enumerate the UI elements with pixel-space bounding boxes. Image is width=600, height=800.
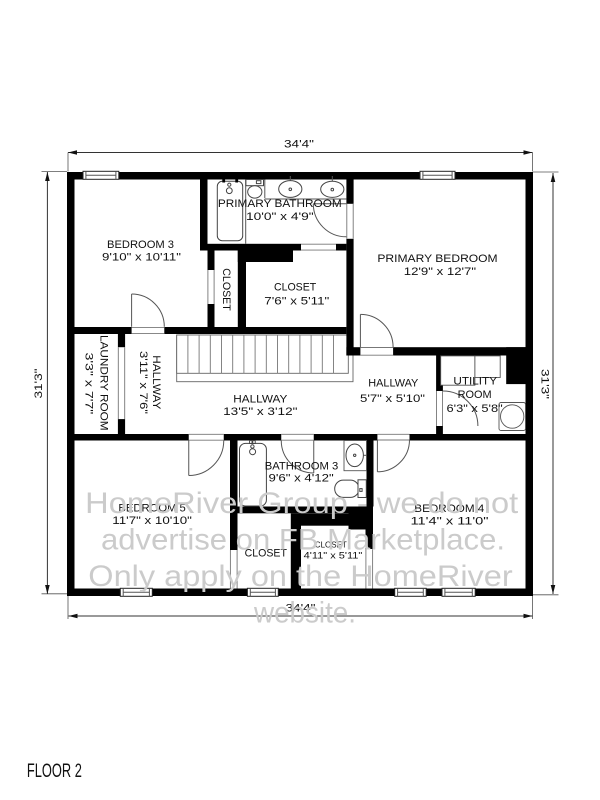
svg-text:CLOSET: CLOSET (274, 282, 316, 294)
svg-text:12'9" x 12'7": 12'9" x 12'7" (404, 266, 476, 278)
svg-text:34'4": 34'4" (284, 139, 314, 151)
svg-text:PRIMARY BATHROOM: PRIMARY BATHROOM (218, 198, 342, 210)
svg-text:31'3": 31'3" (539, 369, 551, 399)
svg-text:9'10" x 10'11": 9'10" x 10'11" (102, 252, 181, 264)
svg-text:10'0" x 4'9": 10'0" x 4'9" (246, 211, 314, 223)
svg-text:FLOOR 2: FLOOR 2 (27, 761, 82, 782)
svg-text:advertise on FB Marketplace.: advertise on FB Marketplace. (101, 524, 505, 557)
svg-text:website.: website. (253, 597, 356, 630)
svg-text:HALLWAY: HALLWAY (368, 378, 419, 390)
svg-text:PRIMARY BEDROOM: PRIMARY BEDROOM (377, 253, 497, 265)
svg-text:13'5" x 3'12": 13'5" x 3'12" (223, 406, 297, 418)
svg-text:HALLWAY: HALLWAY (233, 393, 288, 405)
svg-text:3'3" x 7'7": 3'3" x 7'7" (83, 353, 95, 415)
svg-text:3'11" x 7'6": 3'11" x 7'6" (137, 351, 149, 414)
svg-text:9'6" x 4'12": 9'6" x 4'12" (269, 473, 334, 485)
svg-text:31'3": 31'3" (33, 368, 45, 398)
svg-text:LAUNDRY ROOM: LAUNDRY ROOM (98, 335, 110, 431)
svg-text:CLOSET: CLOSET (220, 268, 232, 311)
svg-text:5'7" x 5'10": 5'7" x 5'10" (360, 393, 425, 405)
svg-text:6'3" x 5'8": 6'3" x 5'8" (447, 403, 503, 415)
svg-text:UTILITY: UTILITY (453, 375, 497, 387)
svg-text:HomeRiver Group - we do not: HomeRiver Group - we do not (85, 487, 519, 520)
svg-text:ROOM: ROOM (458, 389, 492, 401)
svg-text:BEDROOM 3: BEDROOM 3 (107, 239, 174, 251)
svg-text:Only apply on the HomeRiver: Only apply on the HomeRiver (88, 560, 512, 593)
svg-text:BATHROOM 3: BATHROOM 3 (265, 461, 339, 473)
svg-text:7'6" x 5'11": 7'6" x 5'11" (264, 296, 329, 308)
svg-text:HALLWAY: HALLWAY (150, 355, 162, 410)
